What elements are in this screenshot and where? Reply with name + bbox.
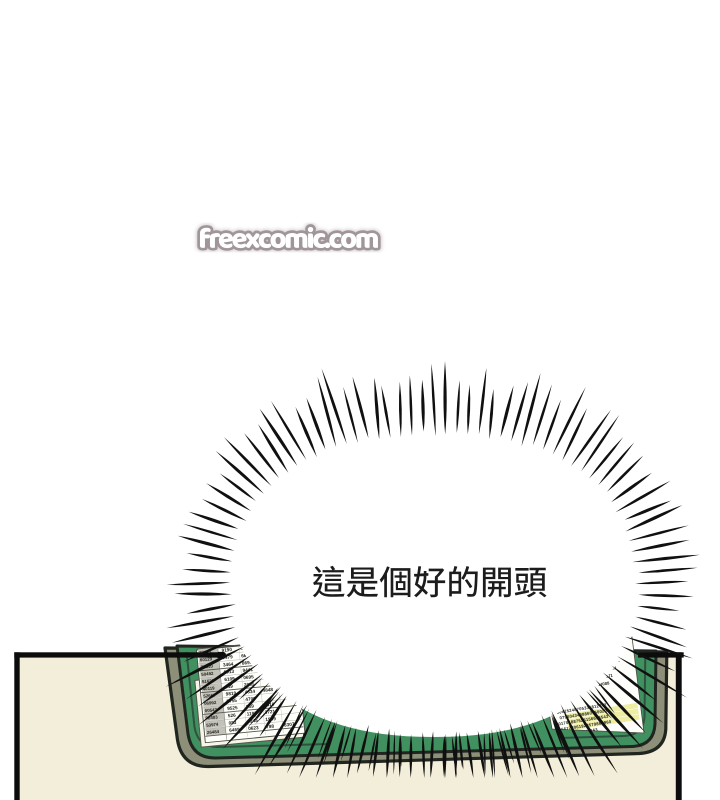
svg-text:9525: 9525 bbox=[227, 705, 238, 711]
svg-text:0623: 0623 bbox=[248, 725, 259, 731]
svg-text:526: 526 bbox=[228, 713, 237, 719]
svg-text:0695: 0695 bbox=[243, 674, 254, 680]
